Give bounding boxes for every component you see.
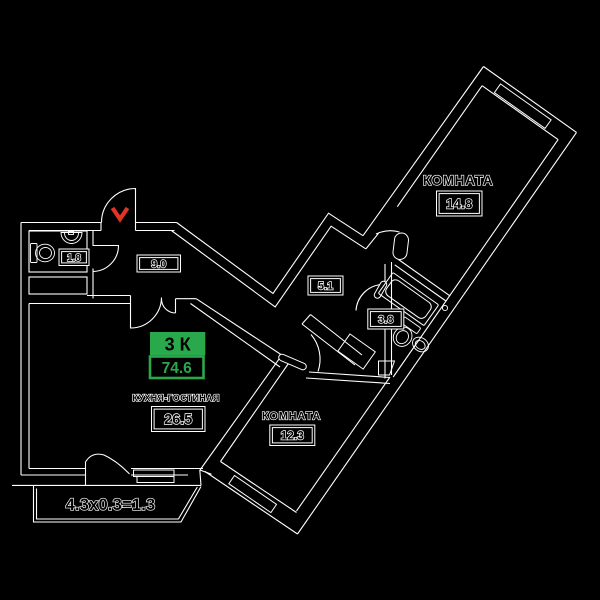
svg-text:1.8: 1.8 (67, 253, 81, 264)
svg-text:12.3: 12.3 (281, 429, 305, 443)
svg-text:5.1: 5.1 (318, 280, 333, 292)
svg-text:КОМНАТА: КОМНАТА (262, 411, 321, 423)
svg-text:4.3x0.3=1.3: 4.3x0.3=1.3 (66, 496, 156, 514)
svg-text:КОМНАТА: КОМНАТА (423, 173, 494, 188)
svg-text:3.8: 3.8 (378, 314, 393, 326)
svg-text:КУХНЯ-ГОСТИНАЯ: КУХНЯ-ГОСТИНАЯ (132, 393, 219, 403)
svg-text:14.8: 14.8 (446, 196, 473, 211)
svg-text:9.0: 9.0 (151, 258, 166, 270)
svg-text:26.5: 26.5 (164, 412, 192, 428)
svg-text:74.6: 74.6 (162, 360, 193, 377)
svg-text:3 К: 3 К (165, 335, 192, 355)
